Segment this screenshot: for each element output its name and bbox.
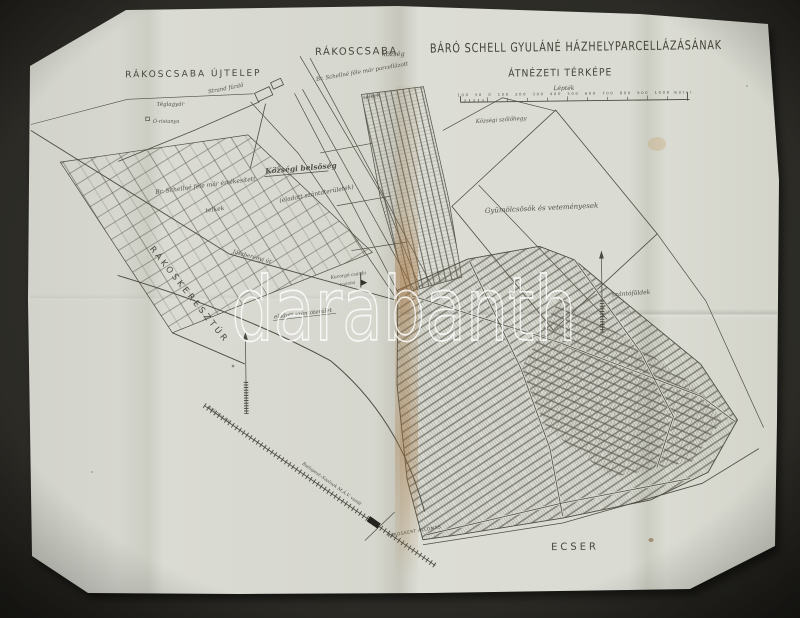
- photo-of-map: BÁRÓ SCHELL GYULÁNÉ HÁZHELYPARCELLÁZÁSÁN…: [0, 0, 800, 618]
- photo-vignette: [0, 0, 800, 618]
- map-canvas: BÁRÓ SCHELL GYULÁNÉ HÁZHELYPARCELLÁZÁSÁN…: [0, 0, 800, 618]
